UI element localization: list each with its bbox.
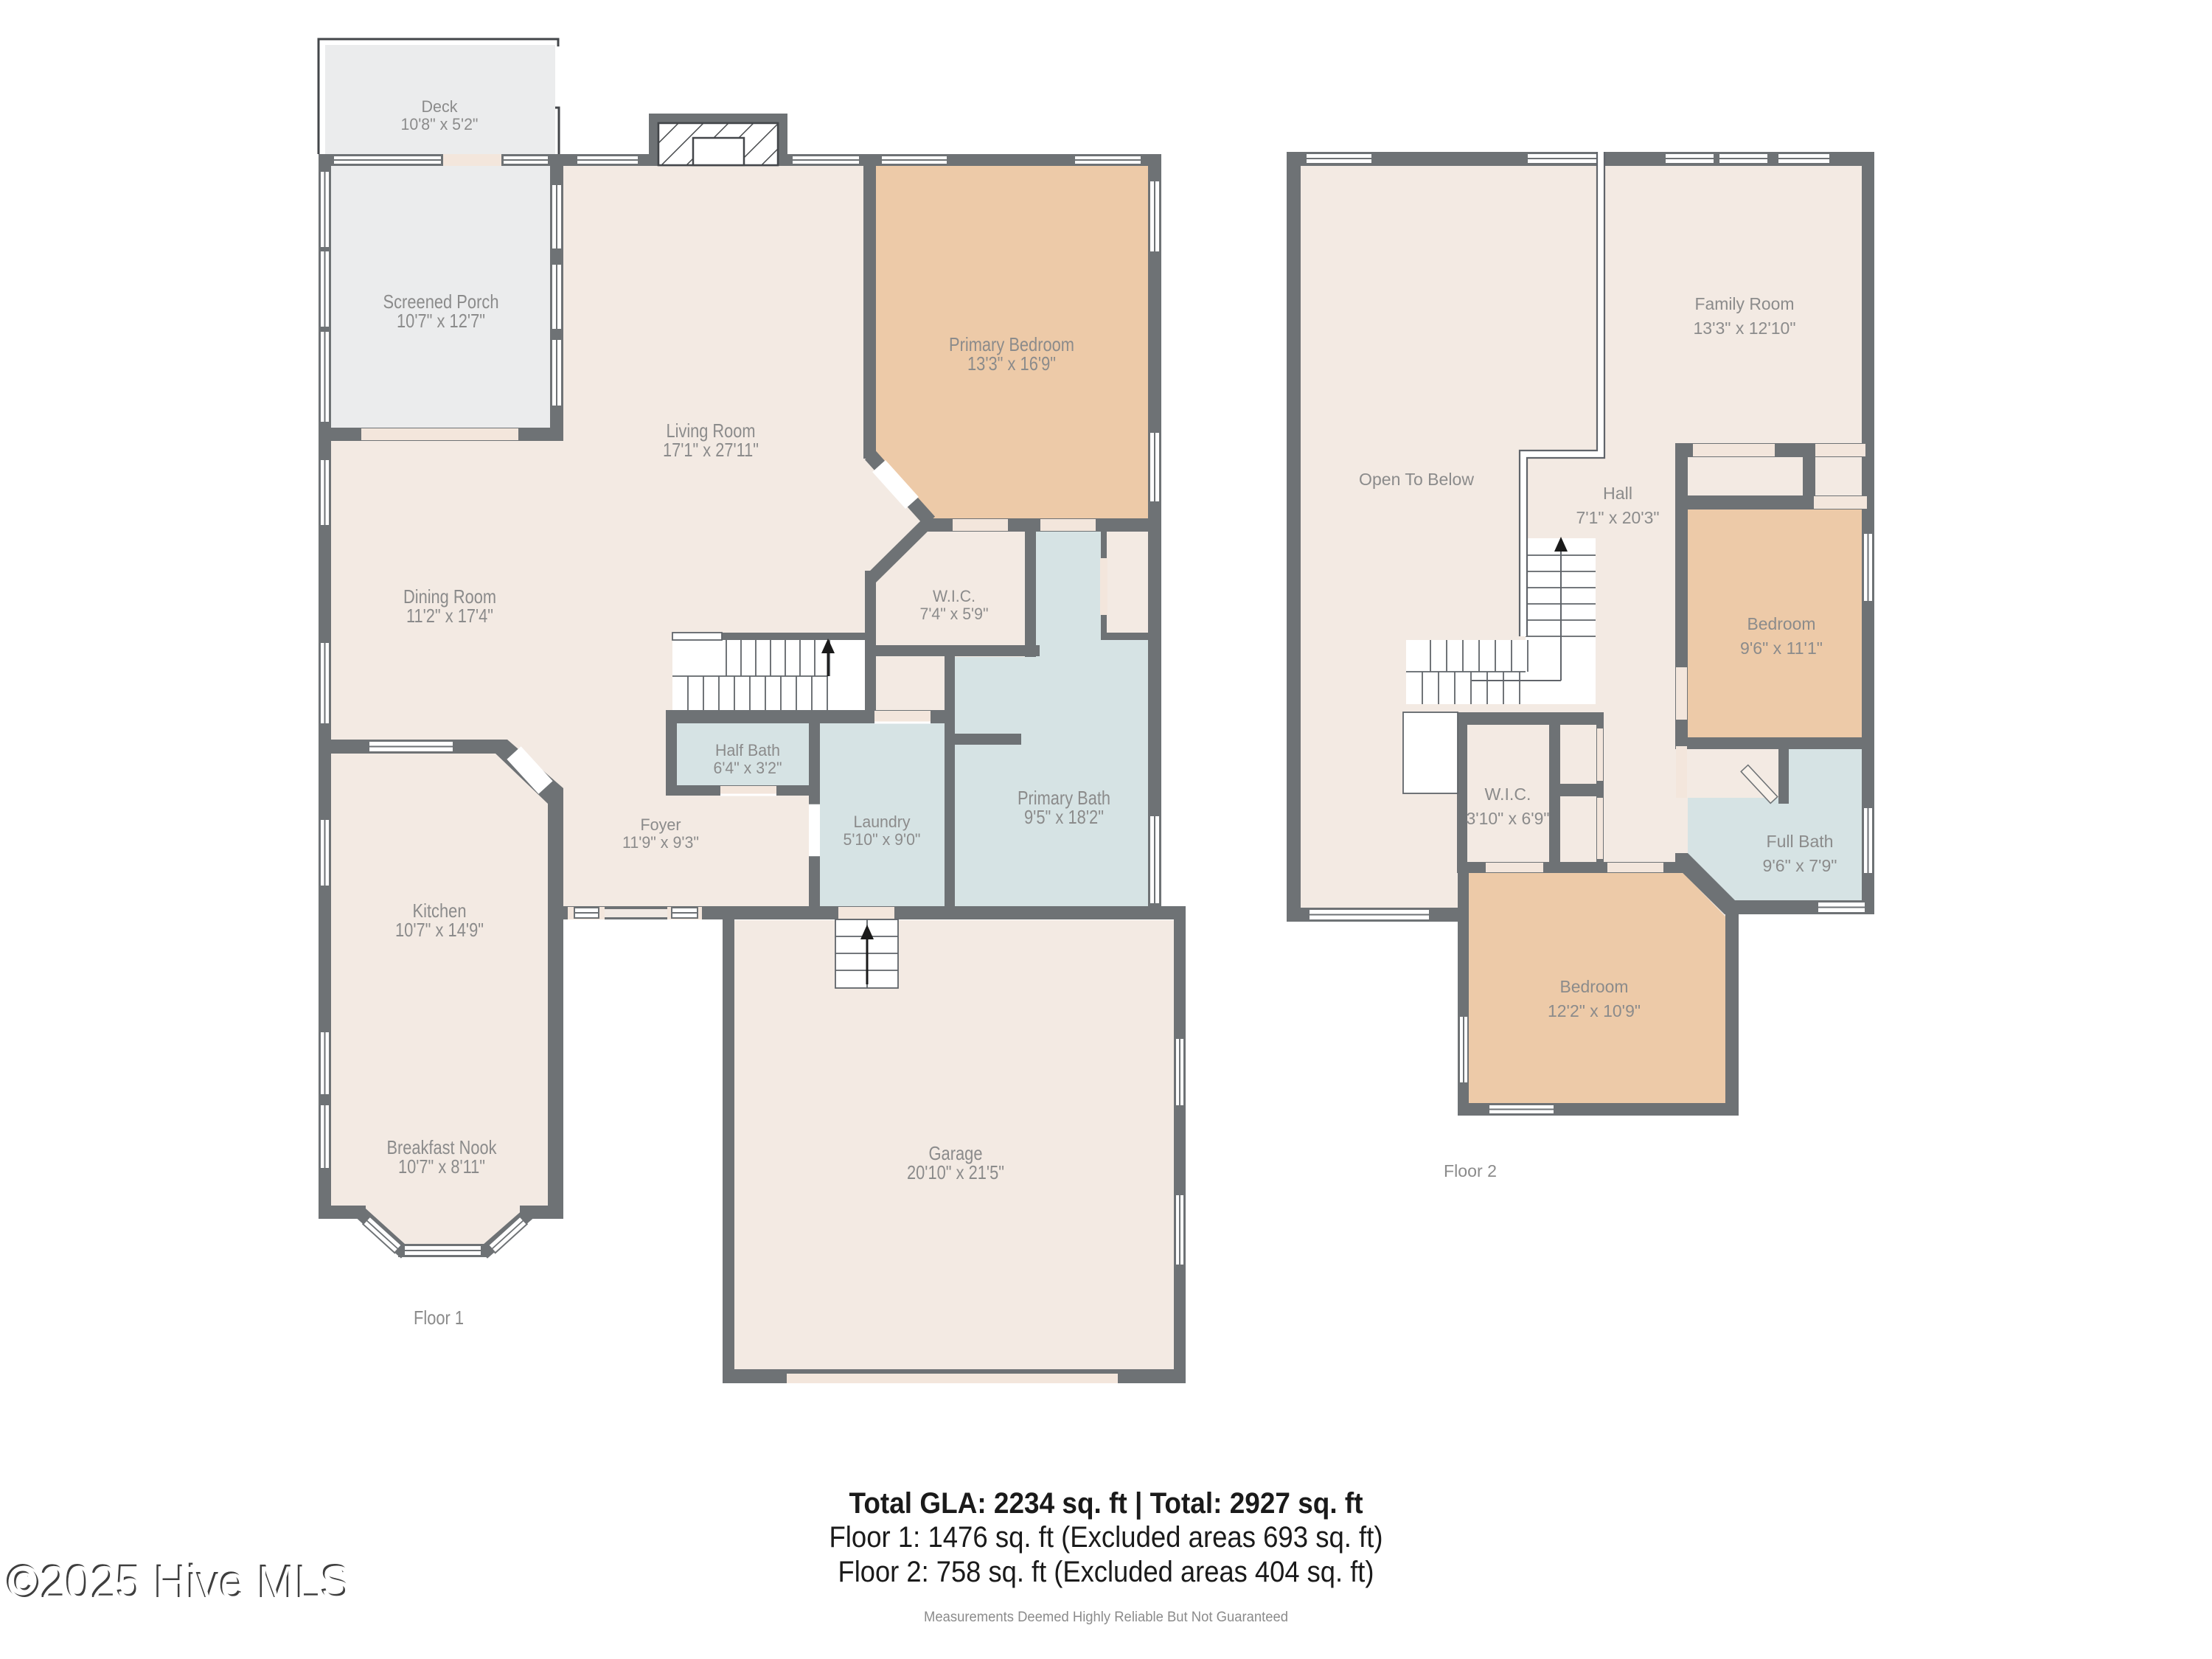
svg-text:Floor 2: Floor 2 xyxy=(1444,1161,1497,1180)
svg-text:10'8" x 5'2": 10'8" x 5'2" xyxy=(401,115,479,133)
svg-text:Hall: Hall xyxy=(1603,484,1632,503)
svg-text:11'2" x 17'4": 11'2" x 17'4" xyxy=(406,605,493,627)
svg-text:10'7" x 8'11": 10'7" x 8'11" xyxy=(398,1155,485,1178)
svg-text:Measurements Deemed Highly Rel: Measurements Deemed Highly Reliable But … xyxy=(924,1610,1288,1625)
svg-text:6'4" x 3'2": 6'4" x 3'2" xyxy=(714,759,782,777)
svg-text:Total GLA: 2234 sq. ft | Total: Total GLA: 2234 sq. ft | Total: 2927 sq.… xyxy=(849,1487,1363,1520)
svg-text:Floor 1: Floor 1 xyxy=(414,1307,464,1329)
svg-text:W.I.C.: W.I.C. xyxy=(1485,785,1531,804)
svg-text:20'10" x 21'5": 20'10" x 21'5" xyxy=(907,1161,1004,1183)
svg-text:7'4" x 5'9": 7'4" x 5'9" xyxy=(920,605,989,623)
svg-text:Family Room: Family Room xyxy=(1695,294,1795,313)
svg-text:Deck: Deck xyxy=(422,97,459,116)
svg-text:Foyer: Foyer xyxy=(641,815,681,834)
svg-text:©2025 Hive MLS: ©2025 Hive MLS xyxy=(8,1557,352,1610)
svg-text:Open To Below: Open To Below xyxy=(1359,470,1474,489)
svg-text:10'7" x 12'7": 10'7" x 12'7" xyxy=(397,310,485,332)
svg-text:Half Bath: Half Bath xyxy=(715,741,780,759)
svg-text:13'3" x 16'9": 13'3" x 16'9" xyxy=(967,352,1056,375)
svg-text:13'3" x 12'10": 13'3" x 12'10" xyxy=(1694,319,1796,338)
svg-text:9'6" x 7'9": 9'6" x 7'9" xyxy=(1763,856,1837,875)
svg-text:10'7" x 14'9": 10'7" x 14'9" xyxy=(395,919,484,941)
svg-text:Bedroom: Bedroom xyxy=(1747,614,1816,633)
svg-text:7'1" x 20'3": 7'1" x 20'3" xyxy=(1576,508,1660,527)
svg-text:Floor 2: 758 sq. ft (Excluded: Floor 2: 758 sq. ft (Excluded areas 404 … xyxy=(838,1556,1374,1588)
svg-text:5'10" x 9'0": 5'10" x 9'0" xyxy=(844,830,921,849)
svg-text:3'10" x 6'9": 3'10" x 6'9" xyxy=(1467,809,1550,828)
svg-text:Full Bath: Full Bath xyxy=(1767,832,1834,851)
svg-text:Floor 1: 1476 sq. ft (Excluded: Floor 1: 1476 sq. ft (Excluded areas 693… xyxy=(829,1521,1383,1554)
svg-text:W.I.C.: W.I.C. xyxy=(933,587,975,605)
svg-text:Bedroom: Bedroom xyxy=(1560,977,1629,996)
svg-text:9'6" x 11'1": 9'6" x 11'1" xyxy=(1740,639,1823,658)
svg-text:Laundry: Laundry xyxy=(854,813,911,831)
svg-text:17'1" x 27'11": 17'1" x 27'11" xyxy=(663,439,759,461)
svg-text:12'2" x 10'9": 12'2" x 10'9" xyxy=(1548,1001,1641,1020)
svg-text:9'5" x 18'2": 9'5" x 18'2" xyxy=(1024,806,1104,828)
svg-text:11'9" x 9'3": 11'9" x 9'3" xyxy=(622,833,699,852)
